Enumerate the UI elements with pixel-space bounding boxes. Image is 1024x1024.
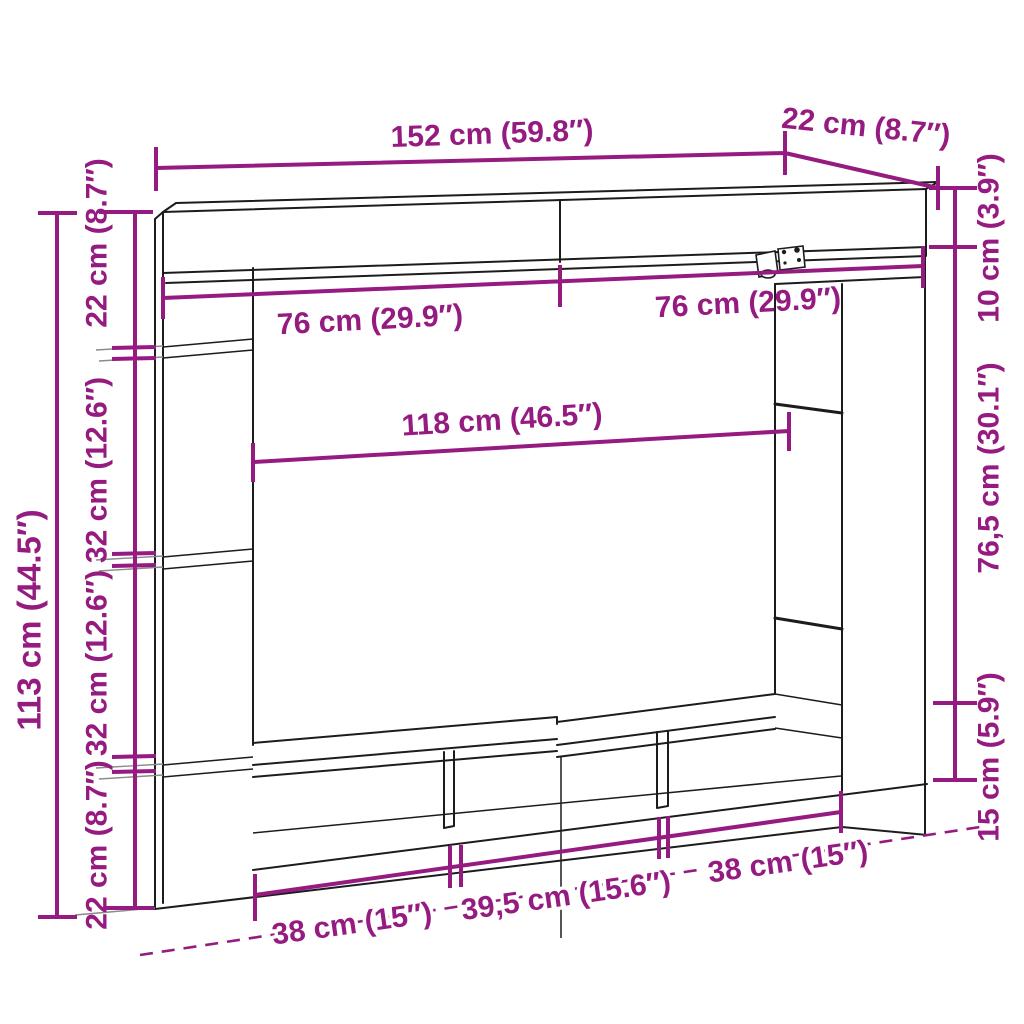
dim-label-left-half-width: 76 cm (29.9″): [276, 299, 464, 342]
left-column: [155, 212, 253, 909]
dim-label-total-height: 113 cm (44.5″): [11, 509, 48, 730]
dim-label-right-middle-height: 76,5 cm (30.1″): [973, 362, 1006, 573]
furniture-dimension-diagram: 152 cm (59.8″) 22 cm (8.7″) 113 cm (44.5…: [0, 0, 1024, 1024]
hardware-dot: [783, 261, 786, 264]
bench-top-back-edge: [253, 694, 775, 743]
dim-label-opening-width: 118 cm (46.5″): [401, 397, 604, 442]
cabinet-bottom-strip: [166, 247, 926, 283]
dim-label-top-depth: 22 cm (8.7″): [780, 102, 952, 153]
dim-label-top-width: 152 cm (59.8″): [390, 114, 594, 154]
dim-label-left-seg-lower-mid: 32 cm (12.6″): [81, 570, 114, 756]
dim-line-right-heights: [929, 188, 977, 780]
hardware-dot: [794, 247, 800, 253]
right-column-shelf-b: [775, 618, 842, 629]
right-column-bench-joint: [775, 694, 842, 738]
bench-top-front-edge: [253, 717, 775, 765]
dim-label-right-bottom-height: 15 cm (5.9″): [973, 672, 1006, 841]
hardware-box: [778, 246, 805, 270]
left-column-shelf-b: [163, 549, 253, 569]
right-column-shelf-a: [775, 404, 842, 413]
dim-line-top-depth: [785, 153, 938, 210]
dimension-labels: 152 cm (59.8″) 22 cm (8.7″) 113 cm (44.5…: [11, 102, 1006, 952]
diagram-canvas: 152 cm (59.8″) 22 cm (8.7″) 113 cm (44.5…: [0, 0, 1024, 1024]
right-column: [775, 256, 925, 835]
dim-label-left-seg-top: 22 cm (8.7″): [81, 158, 114, 327]
left-column-shelf-a: [163, 339, 253, 358]
left-column-shelf-c: [163, 757, 253, 777]
hardware-dot: [797, 258, 801, 262]
hardware-dot: [782, 250, 786, 254]
dim-label-bottom-right-width: 38 cm (15″): [706, 834, 870, 889]
dim-label-right-half-width: 76 cm (29.9″): [654, 282, 842, 325]
dim-label-right-top-height: 10 cm (3.9″): [973, 153, 1006, 322]
dim-label-left-seg-bottom: 22 cm (8.7″): [81, 760, 114, 929]
bench-divider-1: [444, 751, 454, 828]
dim-label-bottom-middle-width: 39,5 cm (15.6″): [459, 865, 673, 927]
dim-label-left-seg-upper-mid: 32 cm (12.6″): [81, 377, 114, 563]
top-cabinet: [163, 182, 938, 283]
dim-label-bottom-left-width: 38 cm (15″): [270, 896, 434, 951]
